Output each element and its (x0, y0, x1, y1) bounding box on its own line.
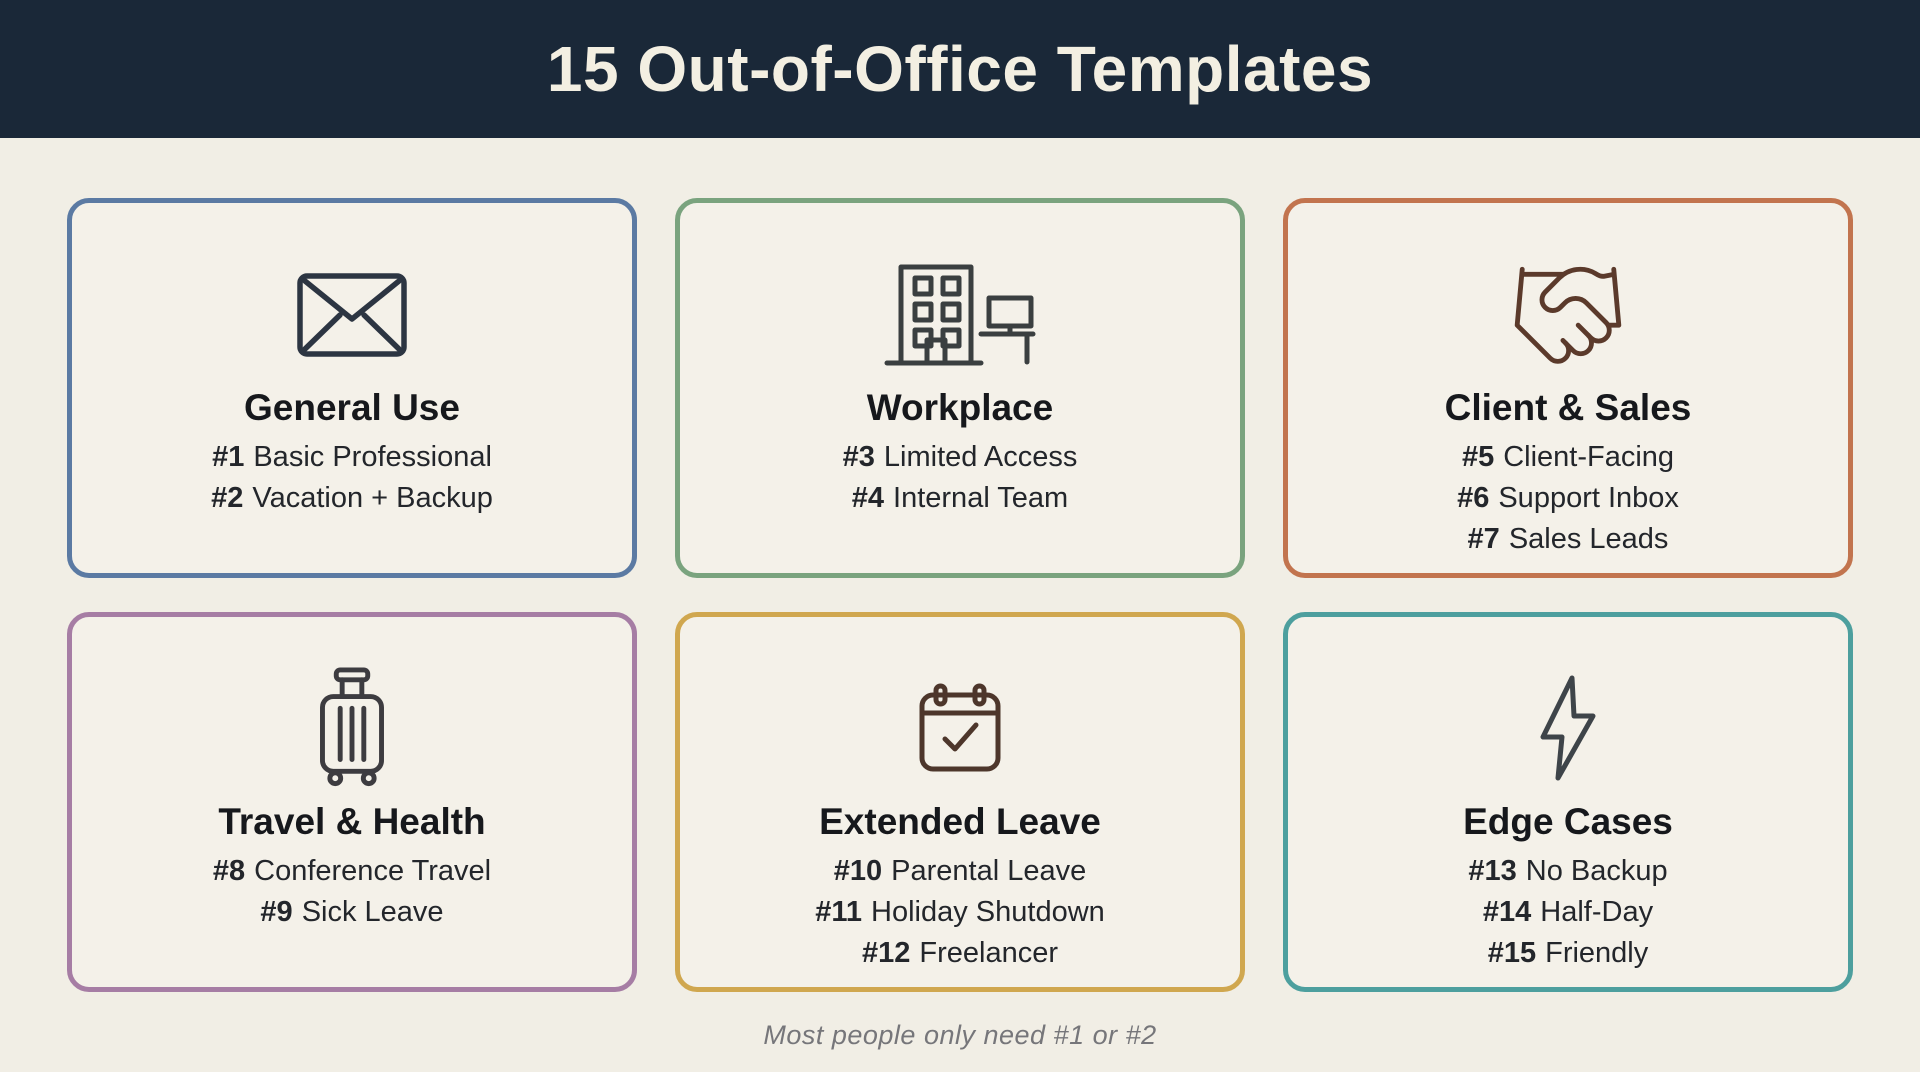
card-title: Workplace (867, 387, 1053, 429)
footer-note: Most people only need #1 or #2 (0, 1020, 1920, 1051)
template-item: #1Basic Professional (211, 437, 493, 478)
template-item: #3Limited Access (843, 437, 1078, 478)
lightning-bolt-icon (1535, 667, 1601, 791)
card-edge-cases: Edge Cases #13No Backup #14Half-Day #15F… (1283, 612, 1853, 992)
template-list: #5Client-Facing #6Support Inbox #7Sales … (1457, 437, 1679, 560)
card-title: Travel & Health (218, 801, 485, 843)
header-banner: 15 Out-of-Office Templates (0, 0, 1920, 138)
card-travel-health: Travel & Health #8Conference Travel #9Si… (67, 612, 637, 992)
envelope-icon (296, 253, 408, 377)
template-item: #6Support Inbox (1457, 478, 1679, 519)
template-item: #10Parental Leave (815, 851, 1105, 892)
calendar-check-icon (918, 667, 1002, 791)
card-workplace: Workplace #3Limited Access #4Internal Te… (675, 198, 1245, 578)
card-title: Client & Sales (1445, 387, 1692, 429)
template-item: #9Sick Leave (213, 892, 491, 933)
template-list: #13No Backup #14Half-Day #15Friendly (1468, 851, 1667, 974)
template-list: #1Basic Professional #2Vacation + Backup (211, 437, 493, 519)
template-item: #8Conference Travel (213, 851, 491, 892)
template-item: #5Client-Facing (1457, 437, 1679, 478)
card-client-sales: Client & Sales #5Client-Facing #6Support… (1283, 198, 1853, 578)
template-list: #8Conference Travel #9Sick Leave (213, 851, 491, 933)
card-title: Extended Leave (819, 801, 1101, 843)
template-item: #15Friendly (1468, 933, 1667, 974)
template-grid: General Use #1Basic Professional #2Vacat… (67, 198, 1853, 992)
card-title: General Use (244, 387, 460, 429)
template-item: #11Holiday Shutdown (815, 892, 1105, 933)
handshake-icon (1502, 253, 1634, 377)
template-item: #2Vacation + Backup (211, 478, 493, 519)
card-title: Edge Cases (1463, 801, 1673, 843)
office-building-icon (881, 253, 1039, 377)
template-item: #12Freelancer (815, 933, 1105, 974)
template-item: #13No Backup (1468, 851, 1667, 892)
suitcase-icon (315, 667, 389, 791)
template-item: #4Internal Team (843, 478, 1078, 519)
card-extended-leave: Extended Leave #10Parental Leave #11Holi… (675, 612, 1245, 992)
page-title: 15 Out-of-Office Templates (547, 32, 1373, 106)
template-item: #7Sales Leads (1457, 519, 1679, 560)
template-list: #10Parental Leave #11Holiday Shutdown #1… (815, 851, 1105, 974)
template-list: #3Limited Access #4Internal Team (843, 437, 1078, 519)
template-item: #14Half-Day (1468, 892, 1667, 933)
card-general-use: General Use #1Basic Professional #2Vacat… (67, 198, 637, 578)
